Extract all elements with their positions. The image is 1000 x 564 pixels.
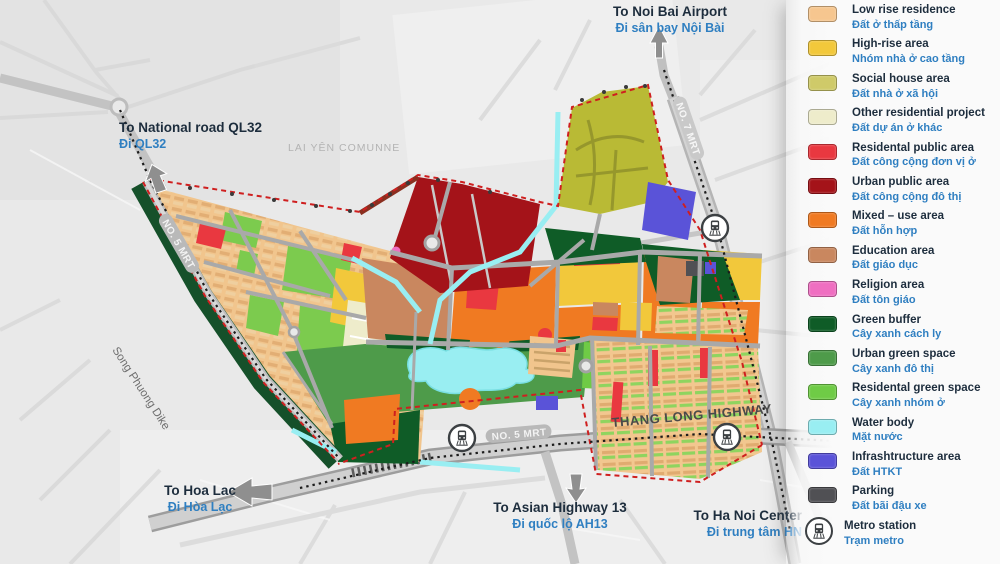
legend-label-vi: Đất nhà ở xã hội — [852, 87, 950, 101]
legend-label-en: Urban green space — [852, 347, 956, 362]
legend-label-vi: Cây xanh nhóm ở — [852, 396, 980, 410]
legend-label-vi: Đất dự án ở khác — [852, 121, 985, 135]
direction-ah13: To Asian Highway 13 Đi quốc lộ AH13 — [480, 500, 640, 533]
direction-en: To Hoa Lac — [140, 483, 260, 500]
metro-station-icon — [805, 517, 833, 545]
legend-swatch — [808, 350, 837, 366]
metro-station-icon — [702, 215, 728, 241]
legend-item-residential-public: Residental public areaĐất công cộng đơn … — [806, 141, 994, 175]
legend-label-vi: Cây xanh đô thị — [852, 362, 956, 376]
direction-vi: Đi QL32 — [119, 137, 262, 153]
legend-item-mixed-use: Mixed – use areaĐất hỗn hợp — [806, 209, 994, 243]
legend-label-en: Green buffer — [852, 313, 941, 328]
legend-item-social-house: Social house areaĐất nhà ở xã hội — [806, 72, 994, 106]
legend-label-en: High-rise area — [852, 37, 965, 52]
legend-swatch — [808, 487, 837, 503]
zone-infrastructure — [642, 182, 696, 240]
legend-item-infrastructure: Infrashtructure areaĐất HTKT — [806, 450, 994, 484]
legend-label-vi: Đất công cộng đơn vị ở — [852, 155, 976, 169]
legend-label-en: Low rise residence — [852, 3, 956, 18]
legend-label-vi: Mặt nước — [852, 430, 914, 444]
legend-swatch — [808, 281, 837, 297]
direction-en: To Asian Highway 13 — [480, 500, 640, 517]
legend-label-en: Urban public area — [852, 175, 961, 190]
legend-swatch — [808, 6, 837, 22]
legend-label-vi: Trạm metro — [844, 534, 916, 548]
legend-item-education: Education areaĐất giáo dục — [806, 244, 994, 278]
legend-item-low-rise: Low rise residenceĐất ở thấp tầng — [806, 3, 994, 37]
zone-mixed-sw — [344, 394, 400, 444]
roundabout-ql32 — [111, 99, 127, 115]
legend-item-high-rise: High-rise areaNhóm nhà ở cao tầng — [806, 37, 994, 71]
legend-label-en: Water body — [852, 416, 914, 431]
legend-label-en: Mixed – use area — [852, 209, 944, 224]
legend-swatch — [808, 75, 837, 91]
legend-item-religion: Religion areaĐất tôn giáo — [806, 278, 994, 312]
legend-item-urban-public: Urban public areaĐất công cộng đô thị — [806, 175, 994, 209]
legend-label-vi: Đất HTKT — [852, 465, 961, 479]
legend-label-en: Religion area — [852, 278, 924, 293]
direction-en: To Ha Noi Center — [680, 508, 802, 525]
legend-swatch — [808, 144, 837, 160]
direction-hoa-lac: To Hoa Lac Đi Hòa Lạc — [140, 483, 260, 516]
legend-swatch — [808, 212, 837, 228]
legend-label-vi: Đất hỗn hợp — [852, 224, 944, 238]
legend-label-vi: Đất giáo dục — [852, 258, 934, 272]
legend-item-metro-station: Metro station Trạm metro — [806, 519, 994, 553]
legend-label-vi: Đất ở thấp tầng — [852, 18, 956, 32]
legend-label-en: Education area — [852, 244, 934, 259]
legend-label-vi: Đất bãi đậu xe — [852, 499, 927, 513]
legend-item-other-residential: Other residential projectĐất dự án ở khá… — [806, 106, 994, 140]
legend-swatch — [808, 453, 837, 469]
legend-label-en: Metro station — [844, 519, 916, 534]
legend-label-en: Infrashtructure area — [852, 450, 961, 465]
legend-label-en: Parking — [852, 484, 927, 499]
legend-label-en: Residental green space — [852, 381, 980, 396]
legend-swatch — [808, 419, 837, 435]
metro-station-icon — [449, 425, 475, 451]
legend-item-water-body: Water bodyMặt nước — [806, 416, 994, 450]
legend-swatch — [808, 40, 837, 56]
direction-vi: Đi quốc lộ AH13 — [480, 517, 640, 533]
legend-item-urban-green: Urban green spaceCây xanh đô thị — [806, 347, 994, 381]
legend-label-vi: Nhóm nhà ở cao tầng — [852, 52, 965, 66]
direction-hanoi: To Ha Noi Center Đi trung tâm HN — [680, 508, 802, 541]
direction-en: To National road QL32 — [119, 120, 262, 137]
legend-swatch — [808, 384, 837, 400]
direction-vi: Đi Hòa Lạc — [140, 500, 260, 516]
legend-swatch — [808, 247, 837, 263]
direction-ql32: To National road QL32 Đi QL32 — [119, 120, 262, 153]
legend-swatch — [808, 316, 837, 332]
legend-label-en: Residental public area — [852, 141, 976, 156]
legend-label-vi: Cây xanh cách ly — [852, 327, 941, 341]
direction-vi: Đi sân bay Nội Bài — [590, 21, 750, 37]
legend-label-vi: Đất tôn giáo — [852, 293, 924, 307]
direction-noi-bai: To Noi Bai Airport Đi sân bay Nội Bài — [590, 4, 750, 37]
legend-item-residential-green: Residental green spaceCây xanh nhóm ở — [806, 381, 994, 415]
legend-panel: Low rise residenceĐất ở thấp tầng High-r… — [786, 0, 1000, 564]
metro-station-icon — [714, 424, 740, 450]
legend-swatch — [808, 109, 837, 125]
legend-swatch — [808, 178, 837, 194]
legend-label-en: Other residential project — [852, 106, 985, 121]
legend-item-green-buffer: Green bufferCây xanh cách ly — [806, 313, 994, 347]
legend-item-parking: ParkingĐất bãi đậu xe — [806, 484, 994, 518]
legend-label-en: Social house area — [852, 72, 950, 87]
label-lai-yen: LAI YÊN COMUNNE — [288, 141, 400, 154]
urban-plan-map: LAI YÊN COMUNNE Song Phuong Dike THANG L… — [0, 0, 1000, 564]
direction-en: To Noi Bai Airport — [590, 4, 750, 21]
direction-vi: Đi trung tâm HN — [680, 525, 802, 541]
legend-label-vi: Đất công cộng đô thị — [852, 190, 961, 204]
